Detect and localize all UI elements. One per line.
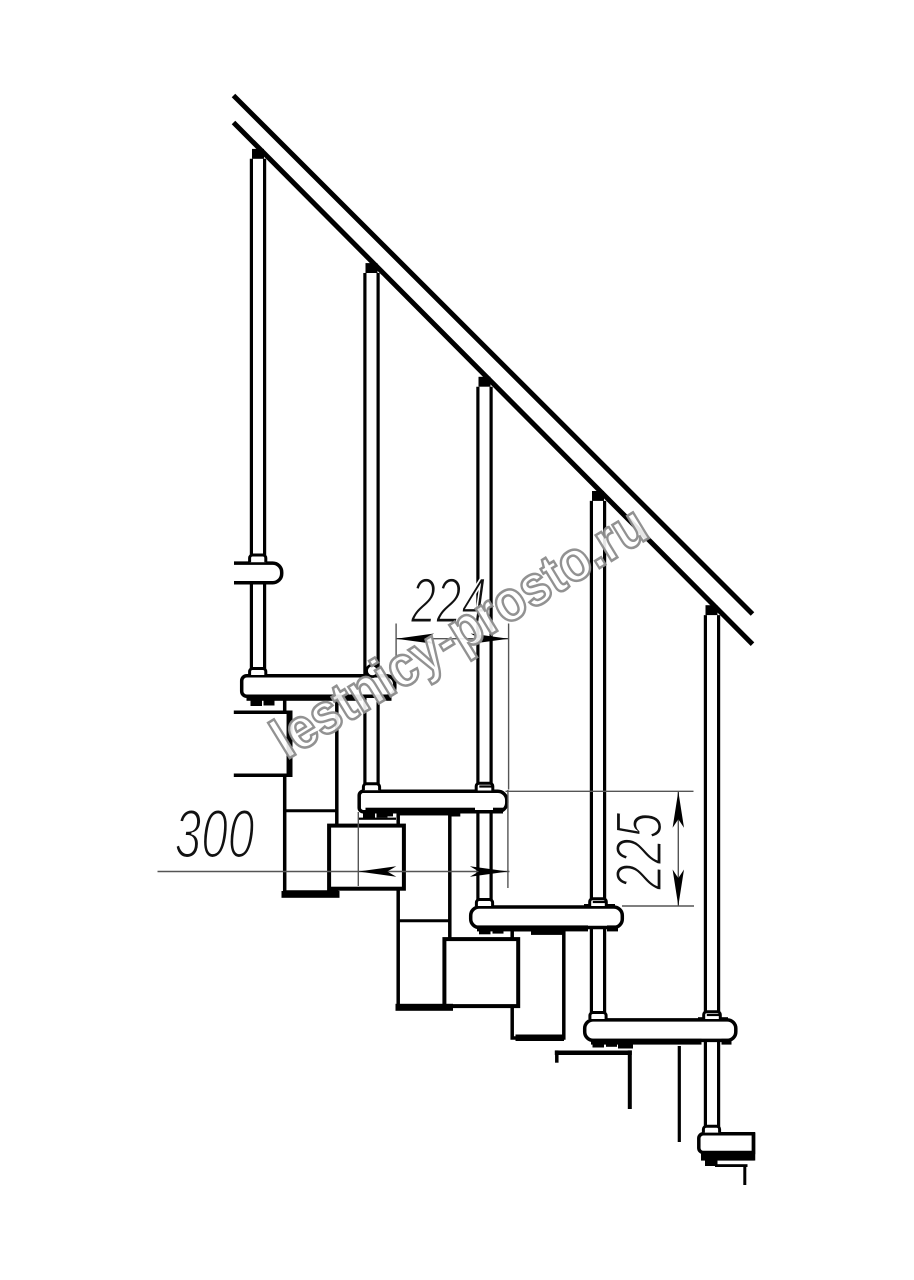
svg-text:300: 300 — [175, 797, 255, 872]
svg-text:225: 225 — [603, 812, 677, 891]
